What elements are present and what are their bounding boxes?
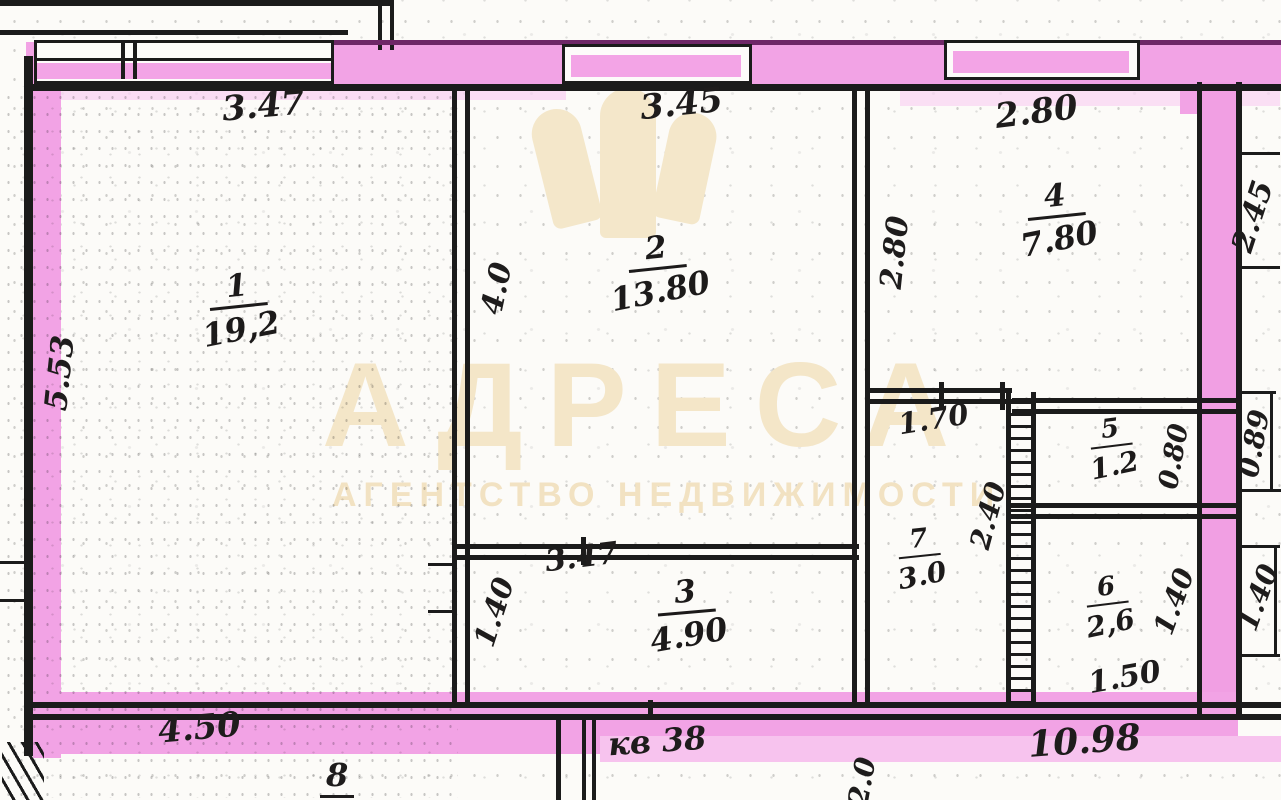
watermark-brand: АДРЕСА [322,336,973,474]
wall-room2-right [852,89,857,707]
window-highlight [37,63,331,79]
window-highlight [953,51,1129,73]
room-area: 13.80 [607,263,713,319]
room-1-label: 1 19,2 [196,264,282,352]
watermark-subtitle: АГЕНТСТВО НЕДВИЖИМОСТИ [332,476,1001,515]
dim-room5-width: 0.80 [1150,405,1198,509]
porch-line [556,720,561,800]
room-number: 5 [1087,412,1133,450]
wall-room5-room6 [1006,503,1240,508]
window-mullion [121,43,125,79]
corner-hatch-marks [2,742,44,800]
room-area: 3.0 [895,555,949,597]
dim-room2-height: 4.0 [471,241,524,336]
apartment-number: кв 38 [607,719,708,764]
logo-petal [526,104,603,231]
wall-room2-right [865,89,870,707]
room-number: 7 [896,522,941,559]
wall-room1-room2 [452,89,457,707]
window-top-left [34,40,334,84]
dim-top-left: 3.47 [220,82,306,129]
porch-line [592,720,596,800]
window-mullion [37,58,331,61]
door-jamb [648,700,653,716]
dim-bottom-right: 10.98 [1027,716,1142,766]
dim-room4-left: 2.80 [872,201,917,304]
shaft-wall [1006,392,1011,707]
room-4-label: 4 7.80 [1014,174,1100,262]
wall-room2-room3 [457,544,859,549]
wall-room5-room6 [1006,514,1240,519]
room-6-label: 6 2,6 [1080,569,1137,642]
window-top-middle [562,44,752,84]
room-number: 2 [625,227,686,273]
door-jamb [1000,382,1005,410]
wall-room2-room3 [457,555,859,560]
dim-tick [428,610,454,613]
dim-top-right: 2.80 [993,87,1080,137]
wall-room1-room2 [465,89,470,707]
room-number: 4 [1024,175,1085,221]
floor-plan-scan: АДРЕСА АГЕНТСТВО НЕДВИЖИМОСТИ [0,0,1281,800]
porch-line [582,720,586,800]
window-highlight [571,55,741,77]
room-area: 1.2 [1087,444,1142,486]
dim-tick [428,563,454,566]
dim-room3-width: 3.47 [543,536,620,580]
window-top-right [944,40,1140,80]
dim-tick [0,561,28,564]
margin-line [0,30,348,35]
dim-tick [1242,152,1280,155]
room-number: 1 [206,265,267,311]
room-7-label: 7 3.0 [893,522,949,595]
room-3-label: 3 4.90 [645,571,730,657]
wall-left [24,56,33,756]
room-number: 3 [655,572,716,617]
dim-room3-height: 1.40 [462,559,525,665]
room-number: 6 [1083,570,1129,608]
shaft-wall [1031,392,1036,707]
room-2-label: 2 13.80 [604,225,712,315]
dim-bottom-left: 4.50 [156,704,242,751]
wall-room5-top [1012,398,1240,403]
highlight-right-wall [1202,82,1236,712]
room-5-label: 5 1.2 [1084,411,1141,484]
dim-tick [0,599,28,602]
room-area: 4.90 [647,609,730,660]
window-mullion [133,43,137,79]
dim-bottom-mark: 8 [320,756,354,798]
room-area: 2,6 [1083,602,1138,644]
margin-line [0,0,392,6]
